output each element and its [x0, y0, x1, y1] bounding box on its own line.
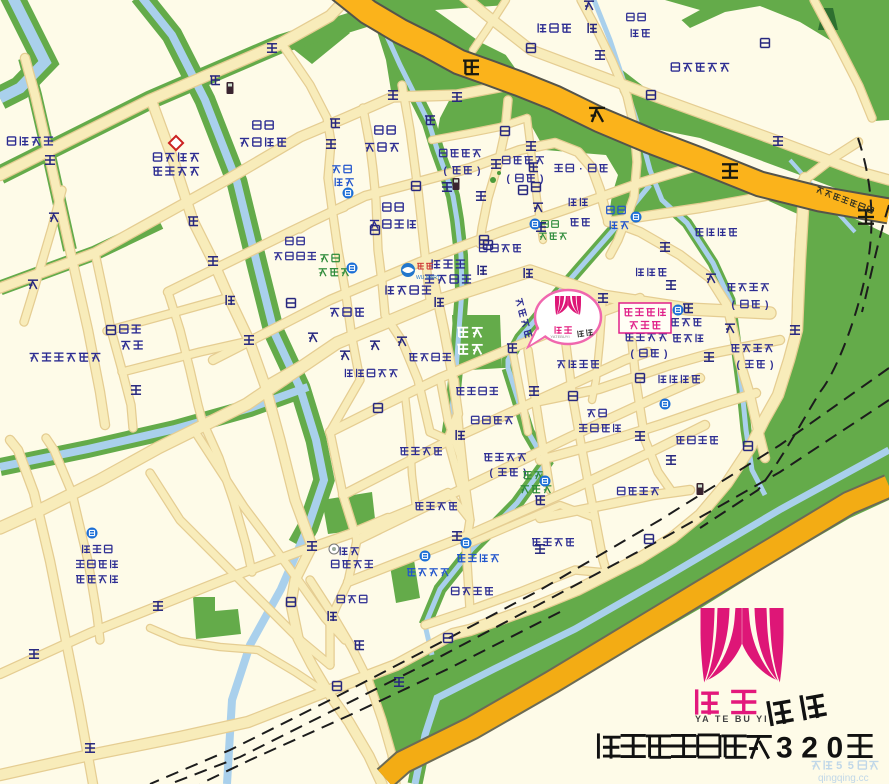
- svg-text:·: ·: [579, 164, 582, 175]
- svg-text:qingqing.cc: qingqing.cc: [818, 773, 869, 784]
- svg-text:): ): [664, 349, 667, 360]
- svg-text:): ): [770, 360, 773, 371]
- svg-text:5: 5: [836, 760, 842, 772]
- svg-text:): ): [765, 300, 768, 311]
- svg-text:): ): [477, 166, 480, 177]
- svg-text:YA TE BU YI: YA TE BU YI: [695, 714, 769, 724]
- svg-text:5: 5: [848, 760, 854, 772]
- svg-text:YATEBUYI: YATEBUYI: [550, 334, 569, 339]
- svg-text:3: 3: [776, 731, 793, 764]
- svg-text:2: 2: [801, 731, 818, 764]
- svg-text:WU MART: WU MART: [416, 275, 440, 281]
